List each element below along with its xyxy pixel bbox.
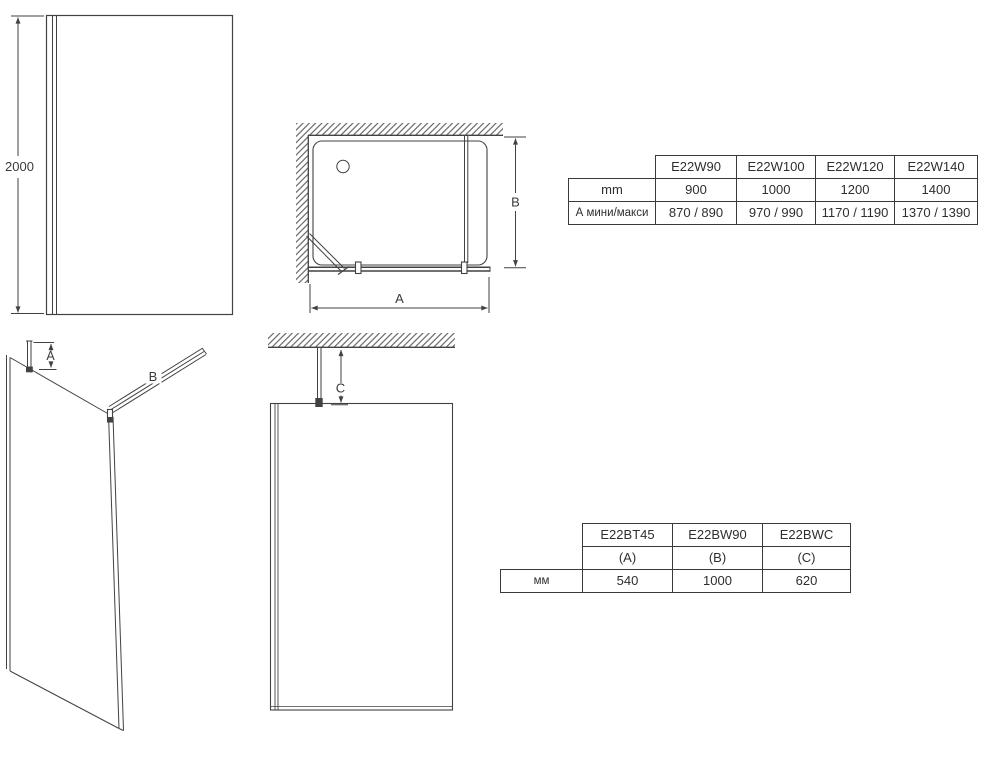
glass-panel-front (47, 16, 233, 315)
width-table: E22W90 E22W100 E22W120 E22W140 mm 900 10… (568, 155, 978, 225)
blank-cell (569, 156, 656, 179)
dim-label-b-iso: B (149, 369, 158, 384)
depth-dimension: B (504, 137, 526, 268)
row-label-cell: мм (501, 570, 583, 593)
dim-label-a: A (395, 291, 404, 306)
technical-drawings: 2000 (0, 0, 988, 758)
value-cell: 970 / 990 (737, 202, 816, 225)
plan-view-drawing: A B (296, 123, 526, 313)
blank-cell (501, 524, 583, 547)
support-bar-table: E22BT45 E22BW90 E22BWC (A) (B) (C) мм 54… (500, 523, 851, 593)
wall-hatch-top (296, 123, 503, 135)
glass-panel-iso (7, 355, 124, 731)
value-cell: 1400 (895, 179, 978, 202)
blank-cell (501, 547, 583, 570)
width-dimension: A (310, 277, 489, 313)
value-cell: 1000 (737, 179, 816, 202)
iso-view-drawing: A B (7, 341, 207, 731)
table-row: E22W90 E22W100 E22W120 E22W140 (569, 156, 978, 179)
value-cell: 1000 (673, 570, 763, 593)
shower-tray (313, 141, 487, 265)
value-cell: 620 (763, 570, 851, 593)
value-cell: 1200 (816, 179, 895, 202)
col-header-cell: E22W100 (737, 156, 816, 179)
wall-profile-bar (26, 341, 33, 373)
ceiling-view-drawing: C (268, 333, 455, 710)
table-row: mm 900 1000 1200 1400 (569, 179, 978, 202)
panel-bracket (356, 262, 362, 274)
dim-label-a-iso: A (46, 349, 55, 363)
row-label-cell: А мини/макси (569, 202, 656, 225)
col-header-cell: E22W120 (816, 156, 895, 179)
value-cell: 900 (656, 179, 737, 202)
drain-circle (337, 160, 349, 172)
value-cell: 540 (583, 570, 673, 593)
support-bar-iso (108, 348, 207, 422)
row-label-cell: mm (569, 179, 656, 202)
col-header-cell: E22BWC (763, 524, 851, 547)
panel-bracket (462, 262, 468, 274)
col-header-cell: E22W140 (895, 156, 978, 179)
value-cell: 1170 / 1190 (816, 202, 895, 225)
sub-header-cell: (A) (583, 547, 673, 570)
dim-label-2000: 2000 (5, 159, 34, 174)
table-row: мм 540 1000 620 (501, 570, 851, 593)
col-header-cell: E22BT45 (583, 524, 673, 547)
glass-panel-ceiling-view (271, 404, 453, 711)
sub-header-cell: (B) (673, 547, 763, 570)
ceiling-support-rod (315, 348, 322, 408)
height-dimension: 2000 (5, 16, 44, 314)
dim-label-b: B (511, 195, 520, 210)
sub-header-cell: (C) (763, 547, 851, 570)
ceiling-hatch (268, 333, 455, 347)
col-header-cell: E22BW90 (673, 524, 763, 547)
dim-label-c: C (336, 381, 345, 396)
table-row: (A) (B) (C) (501, 547, 851, 570)
table-row: E22BT45 E22BW90 E22BWC (501, 524, 851, 547)
profile-dimension: A (34, 343, 57, 370)
wall-hatch-left (296, 135, 308, 283)
ceiling-dimension: C (331, 350, 348, 405)
value-cell: 870 / 890 (656, 202, 737, 225)
datasheet-page: 2000 (0, 0, 988, 758)
table-row: А мини/макси 870 / 890 970 / 990 1170 / … (569, 202, 978, 225)
col-header-cell: E22W90 (656, 156, 737, 179)
front-view-drawing: 2000 (5, 16, 232, 315)
value-cell: 1370 / 1390 (895, 202, 978, 225)
